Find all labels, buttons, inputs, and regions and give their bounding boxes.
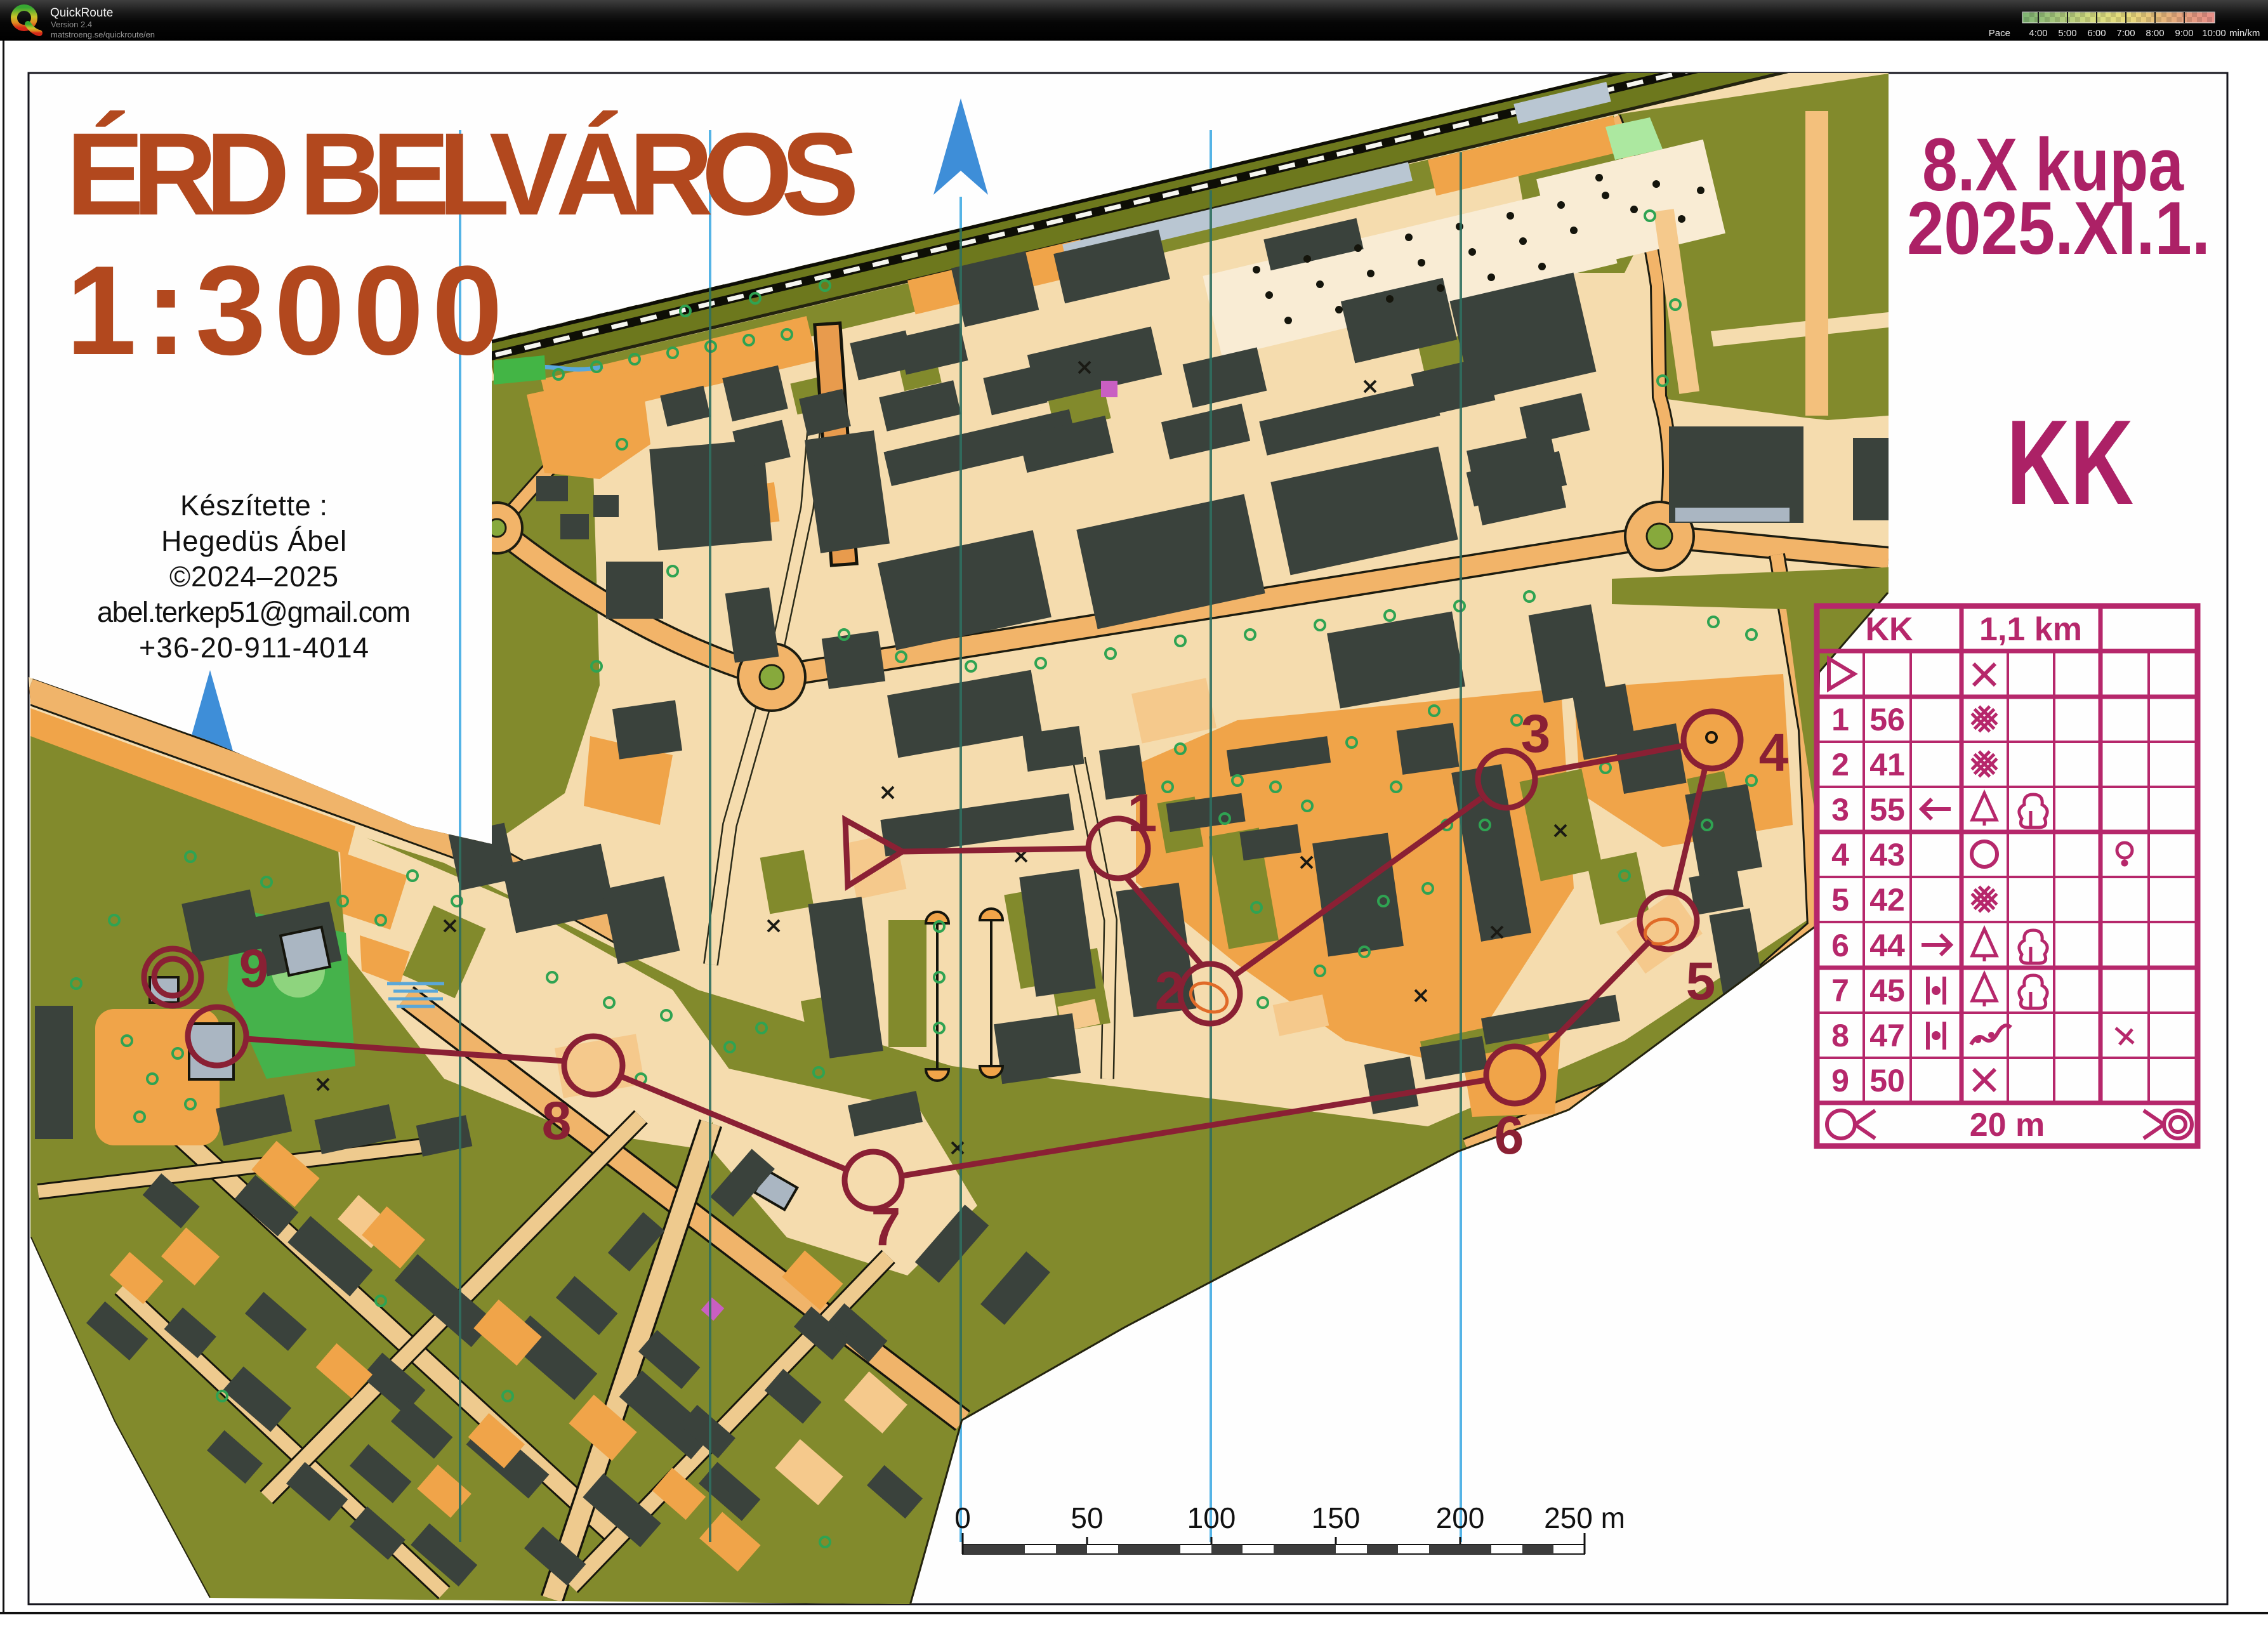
- svg-text:+36-20-911-4014: +36-20-911-4014: [139, 631, 369, 664]
- svg-text:©2024–2025: ©2024–2025: [169, 560, 338, 593]
- svg-text:5: 5: [1831, 882, 1849, 918]
- svg-text:200: 200: [1436, 1501, 1485, 1534]
- svg-text:KK: KK: [2007, 395, 2133, 530]
- svg-text:Hegedüs Ábel: Hegedüs Ábel: [161, 525, 346, 557]
- svg-text:Version 2.4: Version 2.4: [51, 20, 92, 29]
- svg-text:ÉRD BELVÁROS: ÉRD BELVÁROS: [66, 109, 859, 240]
- svg-text:4: 4: [1831, 837, 1849, 873]
- svg-text:9: 9: [239, 939, 269, 998]
- svg-text:250 m: 250 m: [1544, 1501, 1625, 1534]
- svg-text:1: 1: [1128, 783, 1157, 843]
- svg-text:3: 3: [1521, 704, 1551, 763]
- svg-text:56: 56: [1869, 702, 1905, 737]
- svg-text:4:00: 4:00: [2029, 28, 2047, 39]
- svg-text:6:00: 6:00: [2087, 28, 2106, 39]
- svg-text:1: 1: [1831, 702, 1849, 737]
- svg-text:10:00: 10:00: [2202, 28, 2226, 39]
- svg-text:8:00: 8:00: [2146, 28, 2164, 39]
- svg-text:0: 0: [954, 1501, 971, 1534]
- svg-text:47: 47: [1869, 1018, 1905, 1053]
- svg-text:2: 2: [1831, 747, 1849, 782]
- svg-text:5: 5: [1686, 951, 1716, 1011]
- svg-text:20 m: 20 m: [1970, 1107, 2045, 1143]
- svg-text:abel.terkep51@gmail.com: abel.terkep51@gmail.com: [97, 596, 411, 628]
- svg-text:1:3000: 1:3000: [66, 240, 503, 381]
- svg-text:QuickRoute: QuickRoute: [50, 6, 113, 20]
- svg-text:50: 50: [1869, 1063, 1905, 1098]
- svg-text:Pace: Pace: [1989, 28, 2010, 39]
- svg-text:41: 41: [1869, 747, 1905, 782]
- svg-text:8: 8: [1831, 1018, 1849, 1053]
- svg-text:2: 2: [1155, 961, 1185, 1020]
- svg-text:42: 42: [1869, 882, 1905, 918]
- svg-text:7:00: 7:00: [2116, 28, 2135, 39]
- svg-text:9:00: 9:00: [2175, 28, 2193, 39]
- svg-text:43: 43: [1869, 837, 1905, 873]
- svg-text:Készítette :: Készítette :: [180, 489, 327, 522]
- svg-text:5:00: 5:00: [2058, 28, 2076, 39]
- svg-text:8: 8: [542, 1091, 572, 1150]
- svg-text:7: 7: [1831, 973, 1849, 1008]
- svg-text:KK: KK: [1865, 611, 1913, 648]
- svg-text:1,1 km: 1,1 km: [1979, 611, 2082, 648]
- svg-text:150: 150: [1312, 1501, 1361, 1534]
- svg-text:6: 6: [1831, 928, 1849, 963]
- svg-text:3: 3: [1831, 792, 1849, 827]
- svg-text:4: 4: [1759, 723, 1789, 782]
- svg-text:44: 44: [1869, 928, 1905, 963]
- svg-text:7: 7: [871, 1197, 901, 1256]
- svg-text:50: 50: [1071, 1501, 1103, 1534]
- svg-text:9: 9: [1831, 1063, 1849, 1098]
- svg-text:6: 6: [1494, 1105, 1524, 1165]
- svg-text:min/km: min/km: [2229, 28, 2260, 39]
- svg-text:matstroeng.se/quickroute/en: matstroeng.se/quickroute/en: [51, 30, 155, 39]
- svg-text:55: 55: [1869, 792, 1905, 827]
- svg-text:100: 100: [1187, 1501, 1236, 1534]
- svg-text:45: 45: [1869, 973, 1905, 1008]
- svg-text:2025.XI.1.: 2025.XI.1.: [1907, 187, 2210, 270]
